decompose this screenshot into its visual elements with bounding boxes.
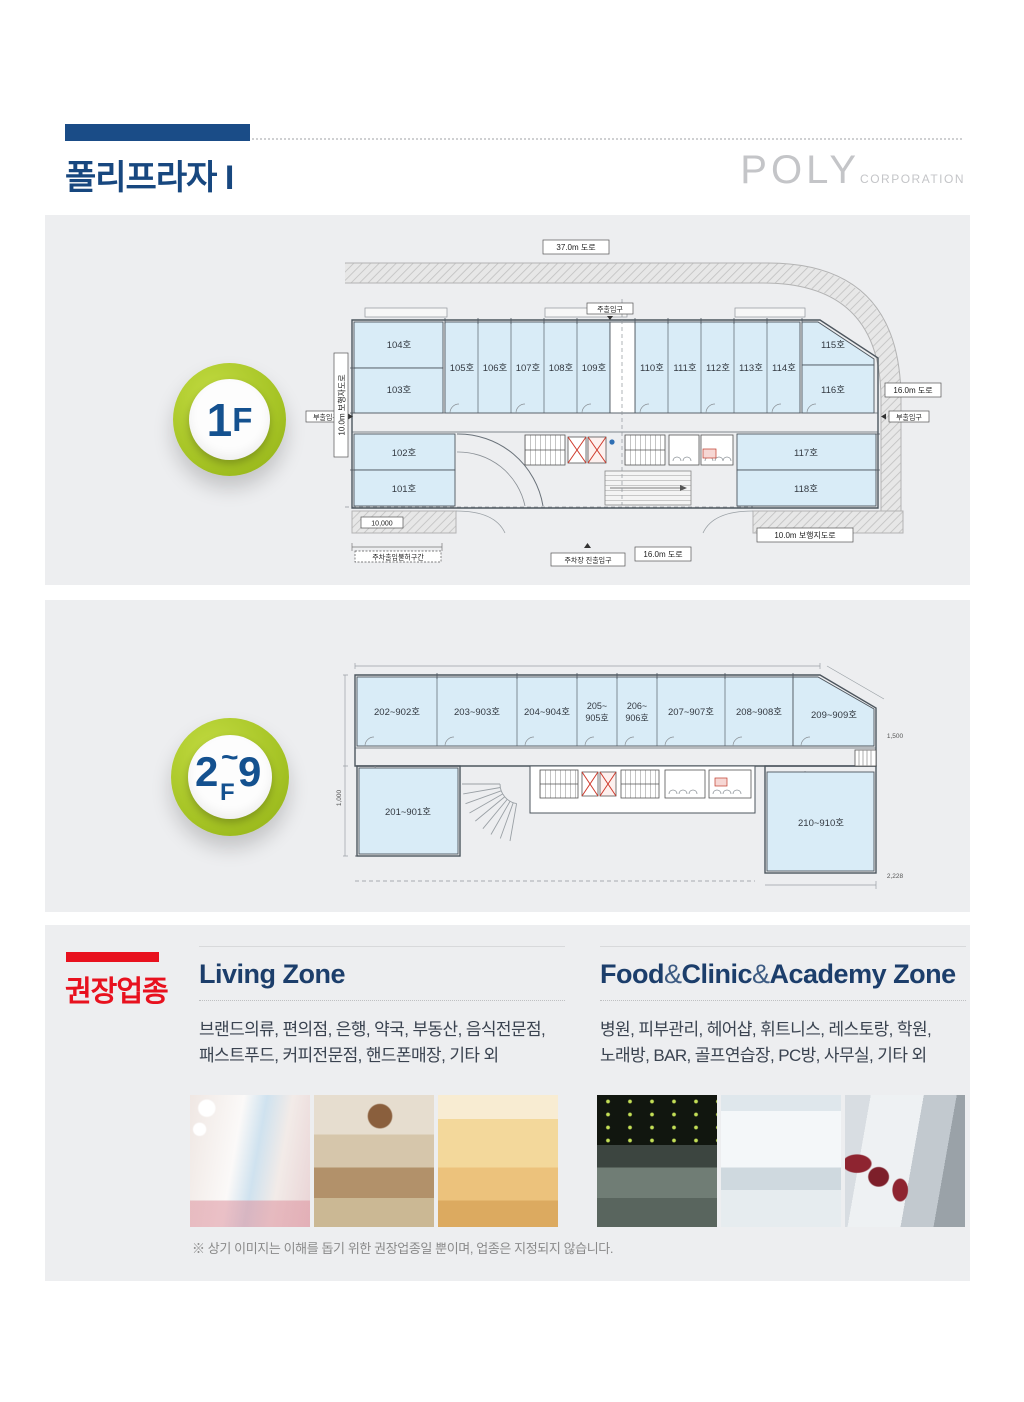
gym-ceiling-lights [597, 1095, 717, 1143]
floor29-badge-inner: 2 ~ 9 F [188, 735, 272, 819]
room-207-label: 207~907호 [668, 707, 714, 718]
rooms-202-208 [357, 677, 793, 746]
entrance-lobby [610, 322, 635, 413]
dim-10000-label: 10,000 [361, 517, 403, 528]
badge-f: F [220, 779, 235, 807]
parking-ban-label: 주차출입불허구간 [352, 543, 442, 562]
room-109-label: 109호 [582, 363, 607, 374]
logo-brand-text: POLY [740, 148, 860, 192]
room-201-label: 201~901호 [385, 807, 431, 818]
svg-text:주출입구: 주출입구 [597, 305, 623, 314]
header-accent-bar [65, 124, 250, 141]
svg-text:16.0m 도로: 16.0m 도로 [643, 550, 682, 559]
floor1-plan: 104호 103호 105호 106호 107호 108호 109호 110호 … [305, 235, 965, 579]
food-zone-column: Food&Clinic&Academy Zone 병원, 피부관리, 헤어샵, … [600, 946, 966, 1070]
room-106-label: 106호 [483, 363, 508, 374]
room-111-label: 111호 [673, 363, 696, 374]
photo-pc-room [845, 1095, 965, 1227]
food-zone-dotline [600, 1000, 966, 1001]
floor1-badge: 1F [173, 363, 286, 476]
photo-cosmetics-store [190, 1095, 310, 1227]
dim-2228: 2,228 [887, 873, 904, 880]
living-zone-title: Living Zone [199, 959, 565, 990]
room-206-label-1: 206~ [627, 701, 647, 711]
photo-dental-clinic [721, 1095, 841, 1227]
room-205-label-1: 205~ [587, 701, 607, 711]
floor1-panel: 1F [45, 215, 970, 585]
room-107-label: 107호 [516, 363, 541, 374]
road-bottom-label: 16.0m 도로 [635, 547, 691, 561]
living-zone-dotline [199, 1000, 565, 1001]
footnote: ※ 상기 이미지는 이해를 돕기 위한 권장업종일 뿐이며, 업종은 지정되지 … [192, 1238, 613, 1257]
food-zone-desc-line2: 노래방, BAR, 골프연습장, PC방, 사무실, 기타 외 [600, 1043, 966, 1069]
floor29-plan: 1,000 1,500 2,228 [335, 638, 950, 894]
header-dotted-rule [252, 138, 962, 140]
road-top-label: 37.0m 도로 [543, 240, 609, 254]
svg-text:37.0m 도로: 37.0m 도로 [556, 243, 595, 252]
floor29-badge: 2 ~ 9 F [171, 718, 289, 836]
canopies [365, 308, 805, 317]
room-209-label: 209~909호 [811, 710, 857, 721]
dim-1500: 1,500 [887, 733, 904, 740]
floor1-badge-number: 1 [207, 393, 233, 447]
room-208-label: 208~908호 [736, 707, 782, 718]
room-108-label: 108호 [549, 363, 574, 374]
room-102-label: 102호 [392, 448, 417, 459]
room-105-label: 105호 [450, 363, 475, 374]
floor1-badge-inner: 1F [189, 379, 270, 460]
dim-1000: 1,000 [336, 789, 343, 806]
core-stairs-elevators-wc [525, 435, 733, 505]
main-entrance-label: 주출입구 [587, 303, 633, 320]
food-title-clinic: Clinic [682, 959, 753, 989]
badge-tilde: ~ [221, 741, 239, 775]
recommend-label: 권장업종 [65, 968, 168, 1010]
ped-left-label: 10.0m 보행자도로 [334, 353, 348, 457]
svg-text:16.0m 도로: 16.0m 도로 [893, 386, 932, 395]
food-zone-title: Food&Clinic&Academy Zone [600, 959, 966, 990]
room-204-label: 204~904호 [524, 707, 570, 718]
room-202-label: 202~902호 [374, 707, 420, 718]
room-205-label-2: 905호 [585, 713, 608, 723]
room-112-label: 112호 [706, 363, 730, 374]
photo-clothing-store [438, 1095, 558, 1227]
room-115-label: 115호 [821, 340, 845, 351]
photo-cafe-interior [314, 1095, 434, 1227]
badge-from: 2 [195, 748, 218, 796]
room-104-label: 104호 [387, 340, 412, 351]
room-206-label-2: 906호 [625, 713, 648, 723]
room-110-label: 110호 [640, 363, 664, 374]
svg-text:부출입구: 부출입구 [896, 413, 922, 422]
food-zone-desc-line1: 병원, 피부관리, 헤어샵, 휘트니스, 레스토랑, 학원, [600, 1017, 966, 1043]
ped-bottom-label: 10.0m 보행지도로 [757, 528, 853, 542]
logo-suffix-text: CORPORATION [860, 172, 965, 186]
recommend-accent-bar [66, 952, 159, 962]
room-101-label: 101호 [392, 484, 417, 495]
fan-stair [462, 784, 517, 841]
badge-to: 9 [238, 748, 261, 796]
ramp-inner-arc [457, 452, 525, 506]
living-zone-topline [199, 946, 565, 959]
room-118-label: 118호 [794, 484, 818, 495]
floor29-panel: 2 ~ 9 F 1,000 1,500 2,228 [45, 600, 970, 912]
driveway-curbs [456, 511, 753, 533]
svg-text:주차장 진출입구: 주차장 진출입구 [564, 556, 612, 565]
food-title-academy: Academy Zone [770, 959, 956, 989]
svg-text:10,000: 10,000 [371, 521, 393, 528]
floor1-badge-f: F [232, 401, 252, 439]
room-103-label: 103호 [387, 385, 412, 396]
page-title: 폴리프라자 I [65, 150, 233, 199]
living-zone-desc-line1: 브랜드의류, 편의점, 은행, 약국, 부동산, 음식전문점, [199, 1017, 565, 1043]
road-right-label: 16.0m 도로 [885, 383, 941, 397]
svg-text:10.0m 보행지도로: 10.0m 보행지도로 [774, 530, 835, 540]
food-title-amp2: & [752, 959, 770, 989]
company-logo: POLYCORPORATION [740, 148, 965, 193]
food-title-amp1: & [664, 959, 682, 989]
food-zone-topline [600, 946, 966, 959]
photo-fitness-gym [597, 1095, 717, 1227]
room-210-label: 210~910호 [798, 818, 844, 829]
svg-text:10.0m 보행자도로: 10.0m 보행자도로 [337, 374, 347, 435]
room-116-label: 116호 [821, 385, 845, 396]
living-zone-desc-line2: 패스트푸드, 커피전문점, 핸드폰매장, 기타 외 [199, 1043, 565, 1069]
parking-gate-label: 주차장 진출입구 [551, 543, 625, 566]
room-203-label: 203~903호 [454, 707, 500, 718]
room-117-label: 117호 [794, 448, 818, 459]
room-114-label: 114호 [772, 363, 796, 374]
living-zone-desc: 브랜드의류, 편의점, 은행, 약국, 부동산, 음식전문점, 패스트푸드, 커… [199, 1017, 565, 1070]
room-113-label: 113호 [739, 363, 763, 374]
food-zone-desc: 병원, 피부관리, 헤어샵, 휘트니스, 레스토랑, 학원, 노래방, BAR,… [600, 1017, 966, 1070]
living-zone-column: Living Zone 브랜드의류, 편의점, 은행, 약국, 부동산, 음식전… [199, 946, 565, 1070]
food-title-food: Food [600, 959, 664, 989]
svg-text:주차출입불허구간: 주차출입불허구간 [372, 553, 424, 562]
